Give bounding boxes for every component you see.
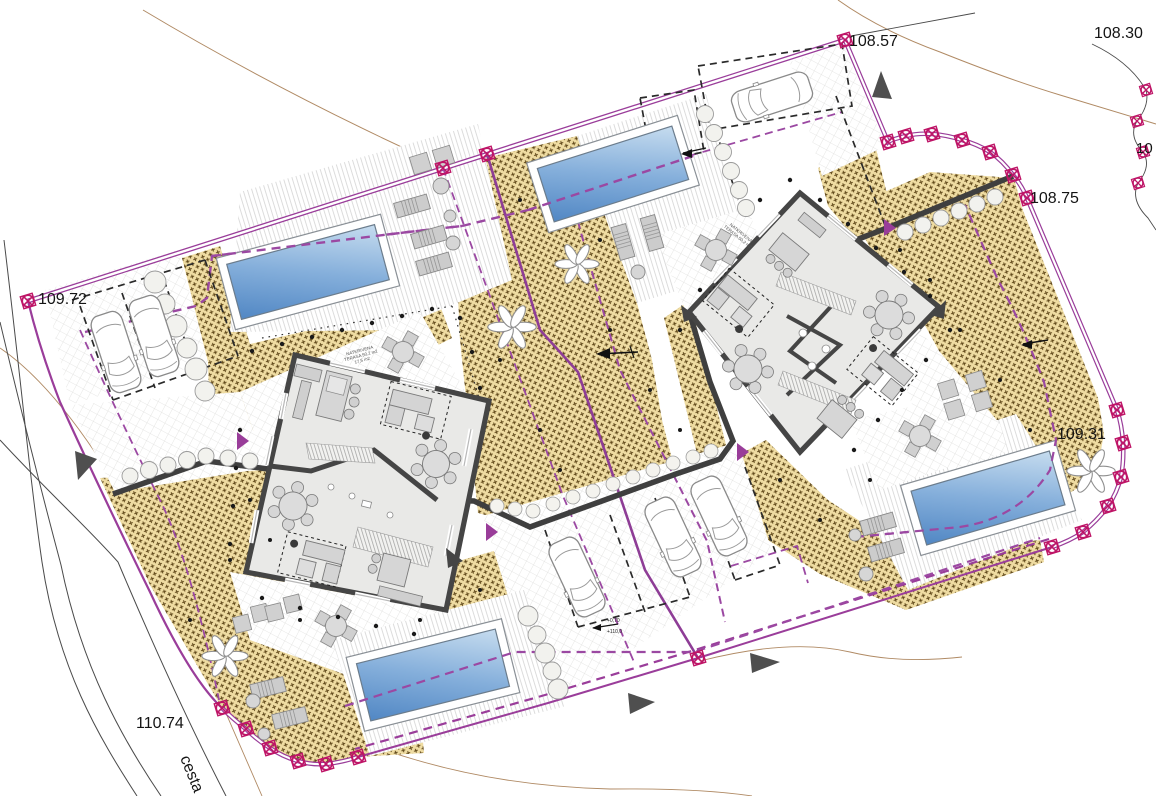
svg-text:110.74: 110.74 <box>136 715 184 732</box>
svg-text:108.57: 108.57 <box>849 33 898 50</box>
svg-text:109.72: 109.72 <box>38 291 87 308</box>
svg-text:+0,70: +0,70 <box>607 618 620 624</box>
svg-text:108.30: 108.30 <box>1094 25 1143 42</box>
svg-text:109.31: 109.31 <box>1057 426 1106 443</box>
svg-text:108.75: 108.75 <box>1030 190 1079 207</box>
svg-text:10: 10 <box>1136 140 1153 157</box>
svg-text:+110,0: +110,0 <box>607 629 622 635</box>
